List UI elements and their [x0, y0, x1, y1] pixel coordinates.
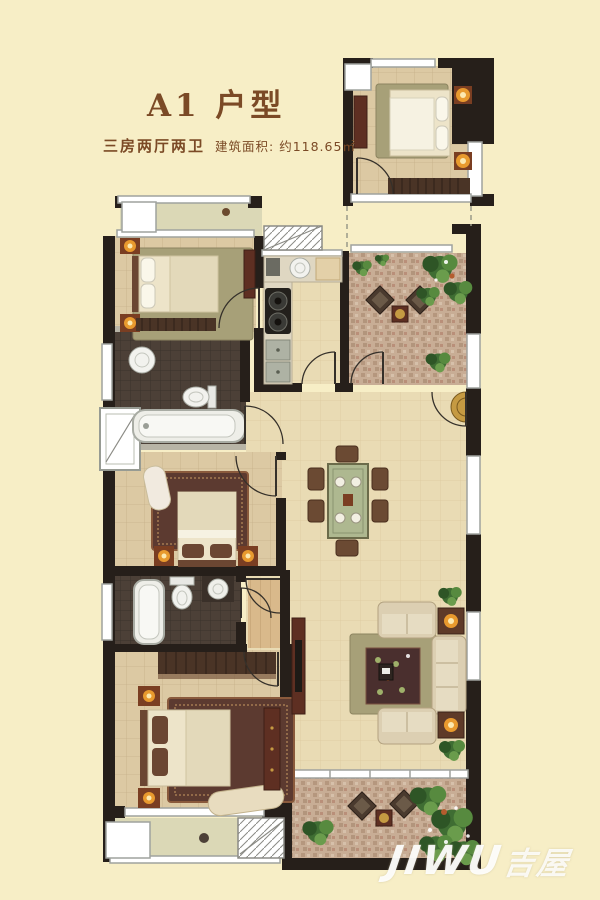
watermark-cn: 吉屋	[501, 846, 572, 882]
plan-header: A1 户型 三房两厅两卫 建筑面积: 约118.65㎡	[103, 80, 356, 156]
pillow-icon	[182, 544, 204, 558]
chair-icon	[372, 500, 388, 522]
centerpiece	[343, 494, 353, 506]
headboard	[178, 560, 236, 567]
furniture-bedroom-b	[142, 464, 258, 567]
pillow-icon	[152, 716, 168, 744]
window	[351, 245, 452, 252]
watermark-logo: JIWU吉屋	[384, 838, 573, 884]
chair-icon	[336, 540, 358, 556]
prep-counter	[316, 258, 340, 280]
chair-icon	[336, 446, 358, 462]
plan-specs-label: 三房两厅两卫	[103, 135, 205, 156]
pillow-icon	[436, 97, 448, 121]
wardrobe-icon	[136, 318, 216, 331]
window	[351, 194, 471, 202]
plan-title: A1 户型	[147, 80, 356, 125]
sliding-door-window	[290, 770, 468, 778]
pillow-icon	[436, 126, 448, 150]
sink-icon	[208, 579, 228, 599]
window	[102, 584, 112, 640]
chair-icon	[308, 500, 324, 522]
sink-icon	[129, 347, 155, 373]
headboard	[140, 710, 148, 786]
balcony-decor	[199, 833, 209, 843]
window	[262, 250, 342, 256]
pillow-icon	[210, 544, 232, 558]
plan-area-label: 建筑面积: 约118.65㎡	[215, 136, 356, 155]
pillow-icon	[152, 748, 168, 776]
floorplan-canvas: A1 户型 三房两厅两卫 建筑面积: 约118.65㎡	[0, 0, 600, 900]
ac-unit-box	[106, 822, 150, 858]
kitchen-sink-icon	[290, 258, 310, 278]
tv-icon	[295, 640, 302, 692]
balcony-decor	[222, 208, 230, 216]
ac-unit-box	[122, 202, 156, 232]
pillow-icon	[141, 284, 155, 308]
window	[467, 612, 480, 680]
window	[371, 59, 435, 67]
toilet-icon	[170, 577, 194, 585]
chair-icon	[308, 468, 324, 490]
window	[467, 334, 480, 388]
appliance-icon	[266, 258, 280, 276]
chair-icon	[372, 468, 388, 490]
window	[467, 456, 480, 534]
headboard	[132, 256, 139, 312]
window	[102, 344, 112, 400]
watermark-latin: JIWU	[384, 838, 505, 884]
pillow-icon	[141, 258, 155, 282]
